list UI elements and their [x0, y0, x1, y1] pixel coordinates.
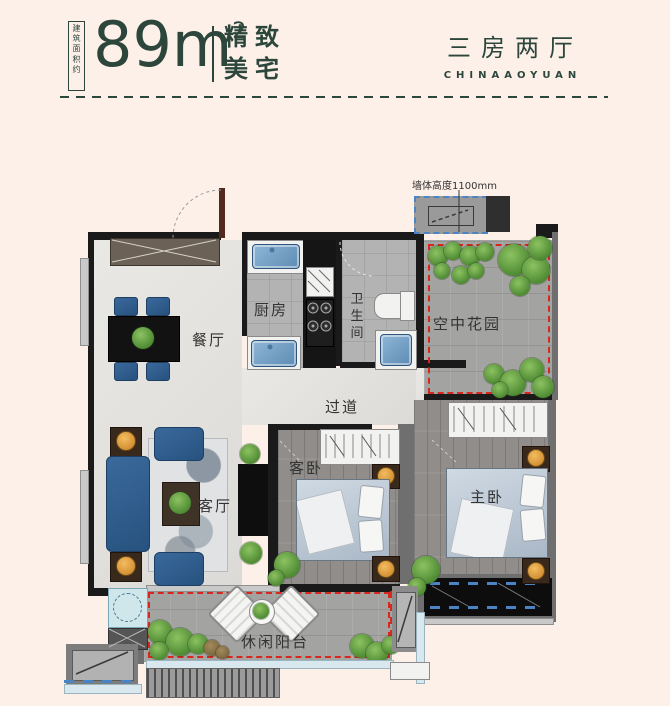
lamp [527, 562, 545, 580]
dining-chair [114, 297, 138, 316]
garden-plant [468, 263, 484, 279]
glazing-blue-dash [64, 680, 138, 683]
fridge [306, 267, 334, 297]
dining-chair [146, 297, 170, 316]
garden-plant [434, 263, 450, 279]
armchair [154, 427, 204, 461]
project-subtitle: CHINAAOYUAN [435, 70, 585, 81]
balcony-plant [216, 646, 229, 659]
pillow [358, 519, 384, 553]
wardrobe [448, 402, 548, 438]
floorplan-page: 建筑面积约 89m2 精致 美宅 三房两厅 CHINAAOYUAN [0, 0, 670, 706]
stove [306, 299, 334, 347]
guest-bed [296, 479, 390, 561]
wall-segment [398, 424, 414, 584]
bay-window-blue-dash [430, 606, 544, 609]
kitchen-sink [251, 340, 297, 367]
table-plant [132, 327, 154, 349]
wall-segment [336, 240, 342, 366]
dining-chair [146, 362, 170, 381]
wardrobe [320, 429, 400, 465]
dashed-separator [60, 96, 608, 98]
tagline: 精致 美宅 [224, 21, 286, 85]
toilet-tank [400, 291, 415, 321]
project-block: 三房两厅 CHINAAOYUAN [435, 28, 585, 81]
utility-circle [113, 593, 142, 622]
pillow [520, 508, 547, 542]
utility-box [390, 662, 430, 680]
master-bed [446, 468, 548, 558]
glazing [64, 684, 142, 694]
garden-plant [532, 376, 554, 398]
armchair [154, 552, 204, 586]
plant [240, 444, 260, 464]
garden-plant [476, 243, 494, 261]
wall-segment [552, 232, 558, 400]
tv-cabinet [238, 464, 268, 536]
pillow [357, 485, 384, 519]
dining-chair [114, 362, 138, 381]
lamp [527, 449, 545, 467]
coffee-table-plant [169, 492, 191, 514]
window-sill [80, 470, 89, 564]
wall-segment [486, 196, 510, 232]
lamp [377, 560, 395, 578]
wall-segment [548, 400, 556, 580]
room-label-corridor: 过道 [325, 396, 359, 417]
tagline-line2: 美宅 [224, 53, 286, 85]
ac-platform-inner [72, 650, 134, 681]
header-divider [212, 26, 214, 82]
balcony-glass-door [146, 585, 280, 592]
sofa [106, 456, 150, 552]
plant [268, 570, 284, 586]
bath-sink [380, 334, 412, 366]
garden-tree [510, 276, 530, 296]
kitchen-sink [252, 244, 300, 269]
room-label-dining: 餐厅 [192, 329, 226, 350]
entry-door-leaf [219, 188, 225, 238]
pillow [519, 474, 546, 508]
garden-tree [528, 236, 552, 260]
balcony-table-plant [253, 603, 269, 619]
room-label-sky-garden: 空中花园 [433, 313, 501, 334]
tagline-line1: 精致 [224, 21, 286, 53]
wall-segment [416, 232, 424, 368]
wall-segment [242, 232, 342, 240]
lamp [116, 556, 136, 576]
room-label-balcony: 休闲阳台 [241, 631, 309, 652]
window-sill [80, 258, 89, 346]
balcony-plant [150, 642, 168, 660]
lamp [116, 431, 136, 451]
louver-grille [146, 668, 280, 698]
wall-segment [424, 394, 552, 400]
garden-plant [492, 382, 508, 398]
project-title: 三房两厅 [435, 28, 585, 63]
bay-window-sill [424, 618, 554, 625]
room-label-guest-bedroom: 客卧 [289, 457, 323, 478]
room-label-kitchen: 厨房 [254, 299, 288, 320]
plant [240, 542, 262, 564]
wall-height-annotation: 墙体高度1100mm [412, 177, 497, 192]
ac-platform-inner [396, 592, 416, 648]
duvet [296, 489, 355, 555]
building-area-note: 建筑面积约 [68, 21, 85, 91]
wall-segment [340, 232, 424, 240]
room-label-living: 客厅 [198, 495, 232, 516]
room-label-master-bedroom: 主卧 [470, 486, 504, 507]
room-label-bathroom: 卫生间 [349, 291, 365, 342]
planter-inner [428, 206, 474, 226]
shoe-cabinet [110, 238, 220, 266]
